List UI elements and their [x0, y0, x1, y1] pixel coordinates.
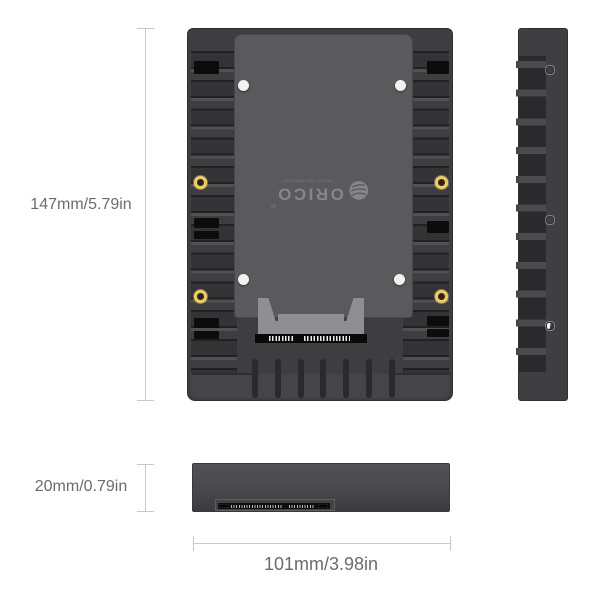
rail-cutout: [427, 316, 449, 326]
bottom-pin-block: [218, 503, 330, 509]
dimension-tick: [137, 511, 154, 512]
sata-power-pins: [231, 505, 283, 508]
dimension-tick: [193, 536, 194, 551]
thickness-label: 20mm/0.79in: [24, 478, 138, 496]
bottom-view: [192, 463, 450, 512]
connector-end-cap: [219, 504, 228, 508]
dimension-tick: [450, 536, 451, 551]
mounting-plate: [234, 34, 413, 318]
dimension-tick: [137, 464, 154, 465]
dimension-tick: [137, 400, 154, 401]
sata-data-pins: [289, 505, 315, 508]
dimension-line-front-height: [145, 28, 146, 401]
screw-hole-gold-icon: [546, 322, 554, 330]
width-label: 101mm/3.98in: [248, 554, 394, 575]
seam-line: [394, 373, 450, 375]
bottom-sata-connector: [215, 499, 335, 511]
orico-logo: ORICO® ORICO TECHNOLOGY: [271, 179, 369, 203]
rail-cutout: [194, 331, 219, 339]
registered-mark: ®: [271, 202, 275, 208]
screw-hole-gold-icon: [546, 66, 554, 74]
connector-end-cap: [318, 504, 328, 508]
logo-text-block: ORICO® ORICO TECHNOLOGY: [271, 179, 344, 203]
screw-hole-white-icon: [395, 80, 406, 91]
vent-slot: [366, 359, 372, 398]
vent-slot: [389, 359, 395, 398]
globe-icon: [349, 181, 369, 201]
connector-wing: [258, 298, 276, 322]
screw-hole-gold-icon: [435, 290, 448, 303]
rail-cutout: [427, 329, 449, 337]
dimension-line-width: [193, 543, 451, 544]
screw-hole-gold-icon: [194, 290, 207, 303]
screw-hole-white-icon: [238, 274, 249, 285]
side-fin-nubs: [516, 56, 519, 372]
vent-slot: [298, 359, 304, 398]
rail-cutout: [194, 231, 219, 239]
rail-cutout: [194, 218, 219, 228]
front-height-label: 147mm/5.79in: [24, 196, 138, 214]
rail-cutout: [427, 221, 449, 233]
rail-cutout: [194, 318, 219, 328]
vent-slot: [343, 359, 349, 398]
dimension-tick: [137, 28, 154, 29]
sata-connector: [258, 298, 364, 343]
vent-slot: [252, 359, 258, 398]
connector-base: [258, 321, 364, 334]
vent-slot-row: [252, 359, 395, 398]
screw-hole-white-icon: [238, 80, 249, 91]
connector-pin-block: [255, 334, 367, 343]
screw-hole-white-icon: [394, 274, 405, 285]
vent-slot: [320, 359, 326, 398]
dimension-line-thickness: [145, 464, 146, 512]
product-dimension-diagram: 147mm/5.79in: [0, 0, 600, 600]
screw-hole-gold-icon: [194, 176, 207, 189]
sata-power-pins: [304, 336, 350, 341]
side-fin-channel: [519, 56, 546, 372]
brand-name: ORICO: [276, 185, 344, 204]
side-view: [518, 28, 568, 401]
brand-tagline: ORICO TECHNOLOGY: [282, 179, 332, 183]
connector-wing: [346, 298, 364, 322]
vent-slot: [275, 359, 281, 398]
screw-hole-gold-icon: [435, 176, 448, 189]
rail-cutout: [427, 61, 449, 74]
screw-hole-gold-icon: [546, 216, 554, 224]
rail-cutout: [194, 61, 219, 74]
sata-data-pins: [269, 336, 294, 341]
seam-line: [192, 373, 252, 375]
front-view: ORICO® ORICO TECHNOLOGY: [187, 28, 453, 401]
